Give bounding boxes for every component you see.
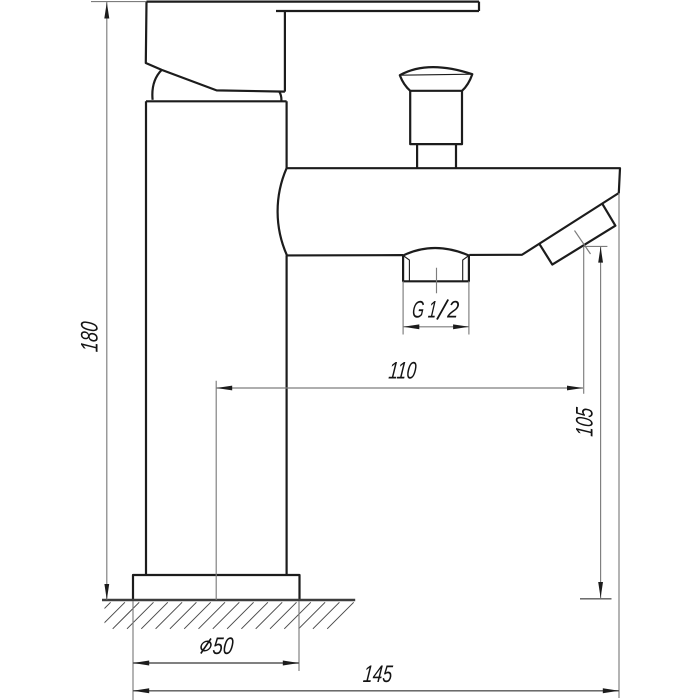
svg-text:G 1: G 1 (411, 297, 438, 324)
svg-text:105: 105 (571, 406, 598, 438)
svg-text:110: 110 (387, 358, 418, 385)
svg-text:145: 145 (362, 661, 394, 688)
svg-text:180: 180 (77, 320, 104, 353)
svg-text:50: 50 (211, 633, 235, 660)
